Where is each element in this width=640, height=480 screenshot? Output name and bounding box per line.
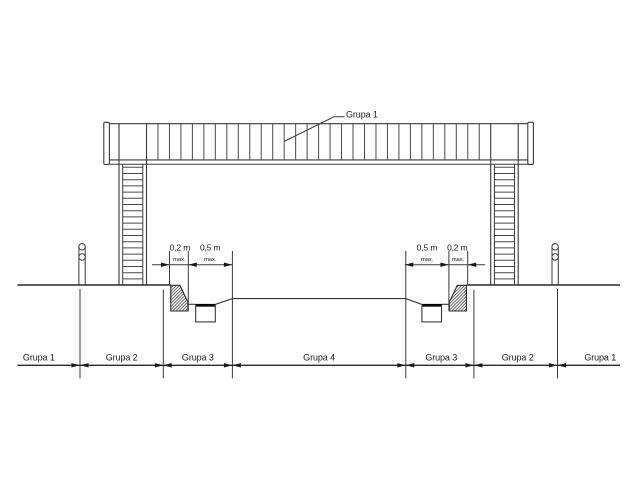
svg-text:0,2 m: 0,2 m [447, 242, 468, 252]
svg-text:Grupa 4: Grupa 4 [303, 352, 335, 362]
svg-text:max.: max. [452, 257, 465, 263]
svg-text:0,5 m: 0,5 m [417, 242, 438, 252]
svg-text:0,2 m: 0,2 m [170, 242, 191, 252]
svg-text:max.: max. [204, 257, 217, 263]
svg-text:Grupa 2: Grupa 2 [106, 352, 138, 362]
svg-text:Grupa 1: Grupa 1 [584, 352, 616, 362]
svg-text:Grupa 1: Grupa 1 [346, 109, 378, 119]
svg-text:Grupa 3: Grupa 3 [425, 352, 457, 362]
svg-text:max.: max. [173, 257, 186, 263]
svg-text:Grupa 3: Grupa 3 [182, 352, 214, 362]
svg-text:Grupa 1: Grupa 1 [23, 352, 55, 362]
svg-text:0,5 m: 0,5 m [200, 242, 221, 252]
svg-text:Grupa 2: Grupa 2 [502, 352, 534, 362]
svg-text:max.: max. [421, 257, 434, 263]
